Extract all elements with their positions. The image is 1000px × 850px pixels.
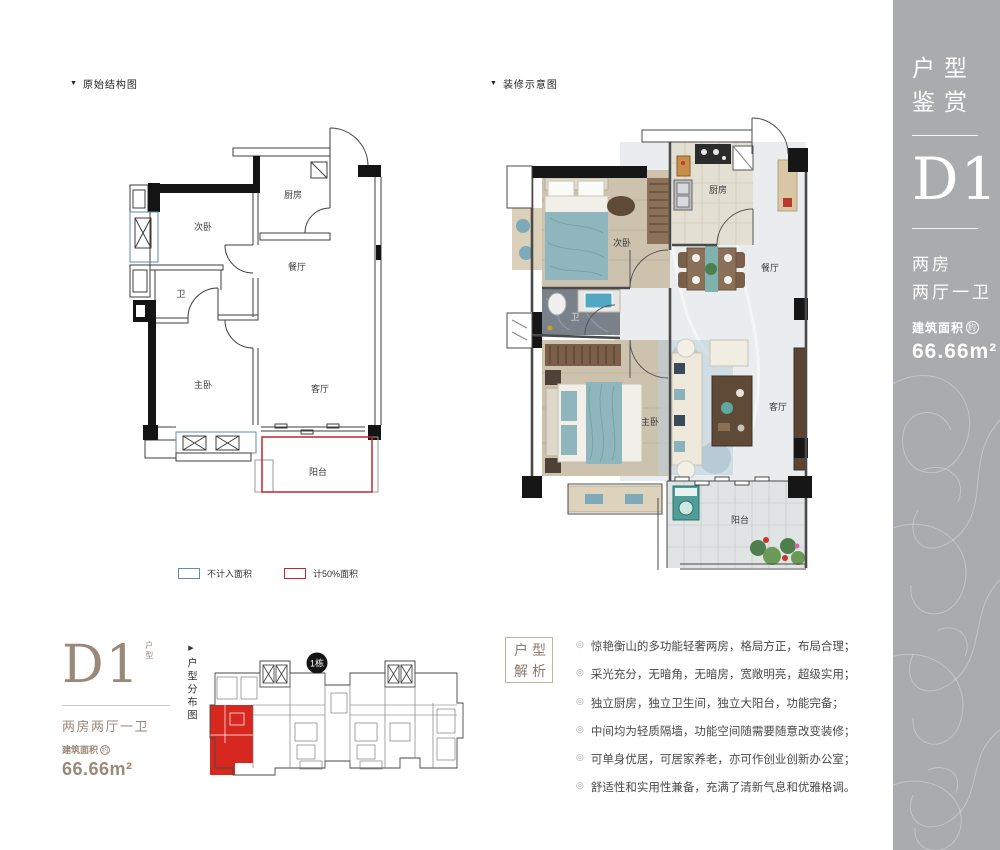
room-label-bath: 卫 [570,312,579,322]
spec-line2: 两厅一卫 [912,279,1000,307]
room-label-dining: 餐厅 [761,262,779,273]
room-label-balcony: 阳台 [309,466,327,477]
sidebar: 户型 鉴赏 D1 户型 两房 两厅一卫 建筑面积 约 66.66m² [893,0,1000,850]
analysis-bullet-text: 采光充分，无暗角，无暗房，宽敞明亮，超级实用； [591,666,856,682]
decorated-floorplan: 次卧 厨房 餐厅 卫 主卧 客厅 阳台 [490,108,825,573]
distribution-map-label-text: 户型分布图 [185,658,196,723]
legend-item-not-counted: 不计入面积 [178,567,252,580]
area-label-text: 建筑面积 [62,743,98,756]
analysis-bullet-list: ◎ 惊艳衡山的多功能轻奢两房，格局方正，布局合理； ◎ 采光充分，无暗角，无暗房… [576,638,888,808]
highlighted-unit [210,705,253,775]
original-structure-floorplan: 次卧 厨房 餐厅 卫 主卧 客厅 阳台 [125,120,385,518]
bullet-icon: ◎ [576,639,584,650]
bullet-icon: ◎ [576,780,584,791]
room-label-bedroom2: 次卧 [613,237,631,248]
unit-code: D1 [62,636,141,694]
analysis-bullet: ◎ 中间均为轻质隔墙，功能空间随需要随意改变装修； [576,723,888,739]
distribution-map-label: ▶ 户型分布图 [183,644,198,723]
room-label-kitchen: 厨房 [284,189,302,200]
unit-distribution-map: 1栋 [205,643,470,790]
room-label-balcony: 阳台 [731,514,749,525]
spec-line1: 两房 [912,251,1000,279]
legend-swatch-blue [178,568,200,579]
balcony-50pct-outline [262,437,372,492]
legend-label-not-counted: 不计入面积 [207,567,252,580]
unit-code-suffix: 户型 [144,641,155,694]
unit-card-area-label: 建筑面积 约 [62,743,174,756]
unit-card-area-value: 66.66m² [62,759,174,780]
dragon-pattern [893,330,1000,850]
legend-label-half-counted: 计50%面积 [313,567,358,580]
decorated-plan-title-text: 装修示意图 [503,76,558,91]
bullet-icon: ◎ [576,696,584,707]
building-badge-text: 1栋 [310,658,324,669]
room-label-kitchen: 厨房 [709,184,727,195]
analysis-bullet: ◎ 独立厨房，独立卫生间，独立大阳台，功能完备； [576,695,888,711]
unit-card-divider [62,705,170,706]
analysis-bullet-text: 惊艳衡山的多功能轻奢两房，格局方正，布局合理； [591,638,856,654]
load-bearing-walls [133,156,381,440]
area-legend: 不计入面积 计50%面积 [178,567,390,580]
room-label-dining: 餐厅 [288,261,306,272]
brochure-page: ▼ 原始结构图 ▼ 装修示意图 [0,0,1000,850]
room-label-living: 客厅 [769,401,787,412]
sidebar-heading: 户型 鉴赏 [912,52,1000,120]
analysis-bullet: ◎ 舒适性和实用性兼备，充满了清新气息和优雅格调。 [576,779,888,795]
analysis-title-line1: 户型 [514,640,552,661]
sidebar-divider [912,228,978,229]
triangle-right-icon: ▶ [187,644,194,652]
bullet-icon: ◎ [576,752,584,763]
analysis-bullet-text: 独立厨房，独立卫生间，独立大阳台，功能完备； [591,695,844,711]
original-plan-title: ▼ 原始结构图 [70,76,138,91]
room-label-bath: 卫 [176,289,185,299]
unit-card-spec: 两房两厅一卫 [62,716,174,735]
bullet-icon: ◎ [576,724,584,735]
legend-swatch-red [284,568,306,579]
room-label-master: 主卧 [641,416,659,427]
unit-card: D1 户型 两房两厅一卫 建筑面积 约 66.66m² [62,636,174,780]
analysis-bullet: ◎ 可单身优居，可居家养老，亦可作创业创新办公室； [576,751,888,767]
room-label-bedroom2: 次卧 [194,221,212,232]
analysis-bullet-text: 可单身优居，可居家养老，亦可作创业创新办公室； [591,751,856,767]
sidebar-heading-line2: 鉴赏 [912,86,1000,120]
decorated-plan-title: ▼ 装修示意图 [490,76,558,91]
analysis-bullet: ◎ 采光充分，无暗角，无暗房，宽敞明亮，超级实用； [576,666,888,682]
room-label-master: 主卧 [194,379,212,390]
unit-code: D1 [912,148,999,210]
triangle-down-icon: ▼ [70,80,78,87]
approx-circle-icon: 约 [100,745,110,755]
analysis-bullet-text: 舒适性和实用性兼备，充满了清新气息和优雅格调。 [591,779,856,795]
sidebar-spec: 两房 两厅一卫 [912,251,1000,307]
sidebar-divider [912,135,978,136]
bullet-icon: ◎ [576,667,584,678]
original-plan-title-text: 原始结构图 [83,76,138,91]
sidebar-heading-line1: 户型 [912,52,1000,86]
unit-card-code-block: D1 户型 [62,636,174,694]
analysis-bullet-text: 中间均为轻质隔墙，功能空间随需要随意改变装修； [591,723,856,739]
analysis-title-box: 户型 解析 [505,637,553,683]
room-label-living: 客厅 [311,383,329,394]
analysis-bullet: ◎ 惊艳衡山的多功能轻奢两房，格局方正，布局合理； [576,638,888,654]
sidebar-unit-block: D1 户型 [912,148,1000,210]
legend-item-half-counted: 计50%面积 [284,567,358,580]
analysis-title-line2: 解析 [514,661,552,682]
triangle-down-icon: ▼ [490,80,498,87]
